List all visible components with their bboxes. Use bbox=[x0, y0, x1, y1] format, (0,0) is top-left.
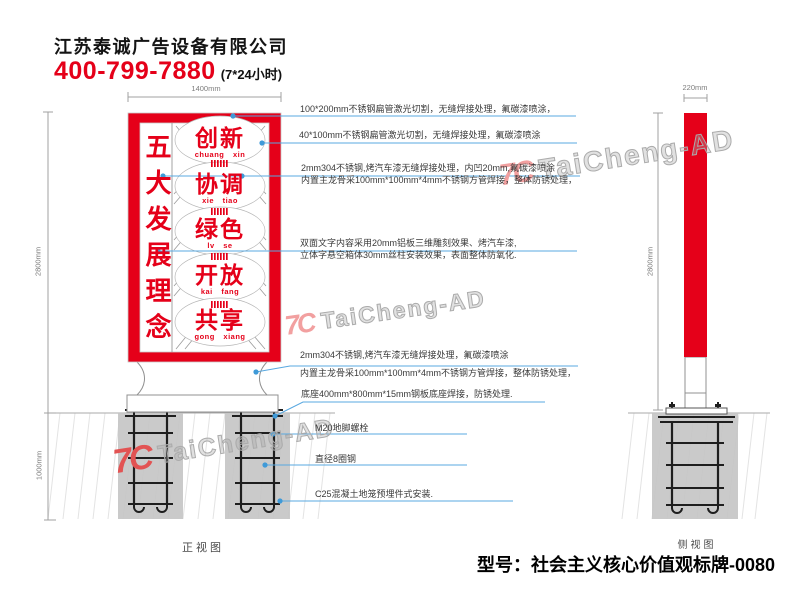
annotation-base-plate: 底座400mm*800mm*15mm钢板底座焊接，防锈处理. bbox=[301, 389, 513, 401]
dim-foundation-depth: 1000mm bbox=[35, 444, 44, 488]
model-number: 型号：社会主义核心价值观标牌-0080 bbox=[470, 551, 775, 577]
annotation-line: 40*100mm不锈钢扁管激光切割，无缝焊接处理，氟碳漆喷涂 bbox=[299, 130, 541, 142]
sign-slogan-vertical: 五大发展理念 bbox=[141, 133, 172, 353]
annotation-line: 直径8圈钢 bbox=[315, 454, 356, 466]
dim-side-width: 220mm bbox=[675, 83, 715, 92]
annotation-line: 内置主龙骨采100mm*100mm*4mm不锈钢方管焊接，整体防锈处理， bbox=[301, 175, 577, 187]
side-view-label: 侧视图 bbox=[667, 536, 727, 551]
word-cn: 绿色 bbox=[176, 217, 264, 241]
annotation-pedestal-2: 内置主龙骨采100mm*100mm*4mm不锈钢方管焊接，整体防锈处理， bbox=[300, 368, 576, 380]
dim-front-width: 1400mm bbox=[185, 84, 227, 93]
sign-word-gongxiang: 共享 gong xiang bbox=[176, 308, 264, 341]
annotation-line: 立体字悬空箱体30mm丝柱安装效果，表面整体防氧化. bbox=[300, 250, 517, 262]
word-pinyin: gong xiang bbox=[176, 332, 264, 341]
annotation-line: C25混凝土地笼预埋件式安装. bbox=[315, 489, 433, 501]
front-view-label: 正视图 bbox=[168, 539, 238, 555]
annotation-lettering: 双面文字内容采用20mm铝板三维雕刻效果、烤汽车漆, 立体字悬空箱体30mm丝柱… bbox=[300, 238, 517, 261]
annotation-anchor-bolt: M20地脚螺栓 bbox=[315, 423, 369, 435]
annotation-inner-tube: 40*100mm不锈钢扁管激光切割，无缝焊接处理，氟碳漆喷涂 bbox=[299, 130, 541, 142]
annotation-concrete: C25混凝土地笼预埋件式安装. bbox=[315, 489, 433, 501]
word-cn: 创新 bbox=[176, 126, 264, 150]
taicheng-logo-icon: 7C bbox=[110, 438, 153, 482]
word-pinyin: kai fang bbox=[176, 287, 264, 296]
annotation-line: 2mm304不锈钢,烤汽车漆无缝焊接处理，内凹20mm,氟碳漆喷涂 bbox=[301, 163, 577, 175]
dim-front-height: 2800mm bbox=[34, 240, 43, 284]
company-name: 江苏泰诚广告设备有限公司 bbox=[54, 33, 288, 59]
pedestal-curves bbox=[137, 362, 267, 395]
word-cn: 协调 bbox=[176, 172, 264, 196]
sign-word-xietiao: 协调 xie tiao bbox=[176, 172, 264, 205]
annotation-line: 底座400mm*800mm*15mm钢板底座焊接，防锈处理. bbox=[301, 389, 513, 401]
phone-number: 400-799-7880 bbox=[54, 57, 216, 85]
taicheng-logo-icon: 7C bbox=[283, 307, 316, 342]
annotation-line: 内置主龙骨采100mm*100mm*4mm不锈钢方管焊接，整体防锈处理， bbox=[300, 368, 576, 380]
sign-word-kaifang: 开放 kai fang bbox=[176, 263, 264, 296]
annotation-rebar: 直径8圈钢 bbox=[315, 454, 356, 466]
annotation-line: 2mm304不锈钢,烤汽车漆无缝焊接处理，氟碳漆喷涂 bbox=[300, 350, 509, 362]
word-cn: 共享 bbox=[176, 308, 264, 332]
sign-word-lvse: 绿色 lv se bbox=[176, 217, 264, 250]
word-pinyin: chuang xin bbox=[176, 150, 264, 159]
annotation-top-tube: 100*200mm不锈钢扁管激光切割，无缝焊接处理，氟碳漆喷涂， bbox=[300, 104, 556, 116]
base-plate-side bbox=[666, 408, 727, 414]
word-pinyin: lv se bbox=[176, 241, 264, 250]
base-plate-front bbox=[127, 395, 278, 412]
word-cn: 开放 bbox=[176, 263, 264, 287]
spec-sheet-canvas: 7C TaiCheng-AD 7C TaiCheng-AD 7C TaiChen… bbox=[0, 0, 800, 600]
annotation-pedestal-1: 2mm304不锈钢,烤汽车漆无缝焊接处理，氟碳漆喷涂 bbox=[300, 350, 509, 362]
dim-side-height: 2800mm bbox=[646, 240, 655, 284]
annotation-line: 双面文字内容采用20mm铝板三维雕刻效果、烤汽车漆, bbox=[300, 238, 517, 250]
sign-word-chuangxin: 创新 chuang xin bbox=[176, 126, 264, 159]
annotation-cabinet: 2mm304不锈钢,烤汽车漆无缝焊接处理，内凹20mm,氟碳漆喷涂 内置主龙骨采… bbox=[301, 163, 577, 186]
side-pole-lower bbox=[685, 357, 706, 409]
word-pinyin: xie tiao bbox=[176, 196, 264, 205]
service-hours: (7*24小时) bbox=[221, 67, 282, 82]
annotation-line: M20地脚螺栓 bbox=[315, 423, 369, 435]
phone-row: 400-799-7880(7*24小时) bbox=[54, 57, 282, 86]
annotation-line: 100*200mm不锈钢扁管激光切割，无缝焊接处理，氟碳漆喷涂， bbox=[300, 104, 556, 116]
